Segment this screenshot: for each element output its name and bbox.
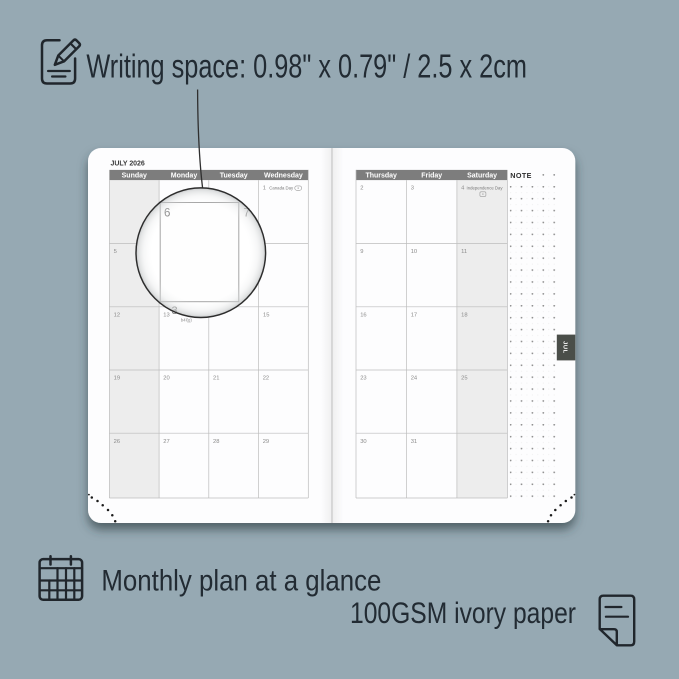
svg-text:Friday: Friday (421, 173, 442, 180)
svg-text:24: 24 (411, 376, 418, 382)
svg-text:18: 18 (461, 312, 467, 318)
svg-text:16: 16 (360, 312, 366, 318)
svg-text:NOTE: NOTE (510, 171, 532, 180)
svg-text:3: 3 (411, 186, 414, 192)
svg-text:11: 11 (461, 249, 467, 255)
svg-text:5: 5 (114, 249, 117, 255)
svg-text:13: 13 (163, 312, 169, 318)
svg-text:b4l(g): b4l(g) (181, 318, 193, 323)
svg-text:31: 31 (411, 439, 417, 445)
svg-text:JULY 2026: JULY 2026 (111, 161, 145, 168)
svg-text:Thursday: Thursday (365, 173, 397, 180)
svg-text:Independence Day: Independence Day (467, 186, 504, 191)
svg-text:26: 26 (114, 439, 120, 445)
svg-text:28: 28 (213, 439, 219, 445)
svg-text:Wednesday: Wednesday (264, 173, 303, 180)
svg-text:10: 10 (411, 249, 417, 255)
svg-text:22: 22 (263, 376, 269, 382)
svg-text:15: 15 (263, 312, 269, 318)
svg-text:20: 20 (163, 376, 169, 382)
svg-text:23: 23 (360, 376, 366, 382)
svg-text:Monthly plan at a glance: Monthly plan at a glance (101, 565, 381, 598)
svg-text:Canada Day: Canada Day (269, 186, 294, 191)
svg-text:12: 12 (114, 312, 120, 318)
svg-text:19: 19 (114, 376, 120, 382)
svg-text:2: 2 (360, 186, 363, 192)
svg-text:Tuesday: Tuesday (220, 173, 248, 180)
svg-text:Monday: Monday (171, 173, 198, 180)
svg-text:9: 9 (360, 249, 363, 255)
svg-text:21: 21 (213, 376, 219, 382)
svg-text:29: 29 (263, 439, 269, 445)
svg-text:30: 30 (360, 439, 366, 445)
svg-text:Sunday: Sunday (122, 173, 147, 180)
svg-text:JUL: JUL (562, 341, 568, 353)
svg-text:Saturday: Saturday (467, 173, 497, 180)
svg-text:25: 25 (461, 376, 467, 382)
svg-text:100GSM ivory paper: 100GSM ivory paper (350, 597, 576, 630)
svg-text:17: 17 (411, 312, 417, 318)
svg-text:1: 1 (263, 186, 266, 192)
svg-text:27: 27 (163, 439, 169, 445)
svg-text:Writing space: 0.98" x 0.79" /: Writing space: 0.98" x 0.79" / 2.5 x 2cm (86, 48, 527, 85)
